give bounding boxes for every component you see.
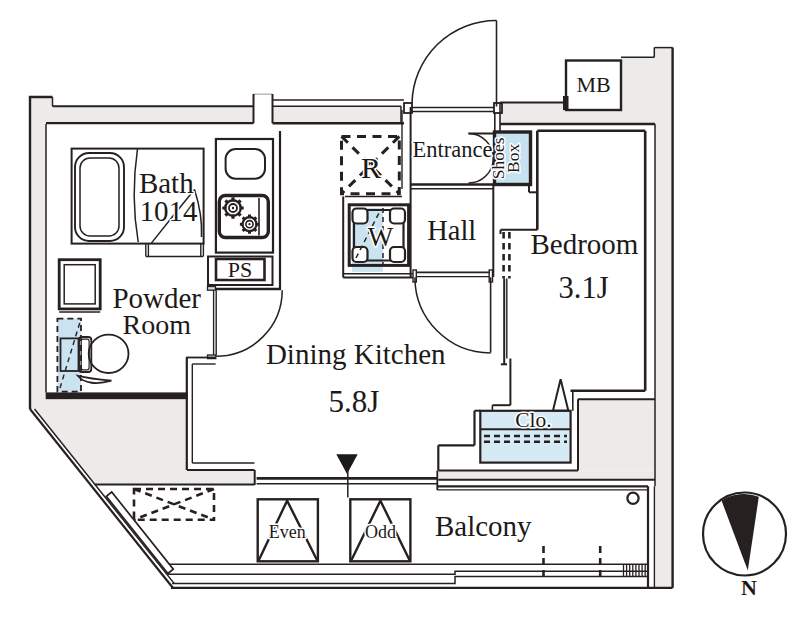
svg-text:Entrance: Entrance	[413, 137, 493, 162]
svg-text:5.8J: 5.8J	[328, 384, 379, 419]
svg-text:Odd: Odd	[365, 522, 396, 542]
svg-text:3.1J: 3.1J	[559, 271, 609, 305]
svg-text:N: N	[741, 575, 757, 600]
svg-text:Hall: Hall	[427, 215, 476, 246]
svg-text:1014: 1014	[140, 195, 199, 227]
svg-text:Room: Room	[122, 309, 191, 340]
svg-text:R: R	[361, 151, 381, 184]
svg-text:Balcony: Balcony	[435, 510, 532, 542]
svg-text:Box: Box	[503, 143, 523, 172]
svg-text:Even: Even	[269, 522, 306, 542]
svg-text:PS: PS	[228, 257, 252, 282]
svg-text:Clo.: Clo.	[515, 408, 551, 432]
svg-text:W: W	[368, 222, 394, 252]
svg-text:Bedroom: Bedroom	[530, 228, 638, 260]
svg-text:MB: MB	[577, 72, 611, 97]
svg-text:Dining Kitchen: Dining Kitchen	[266, 338, 446, 370]
